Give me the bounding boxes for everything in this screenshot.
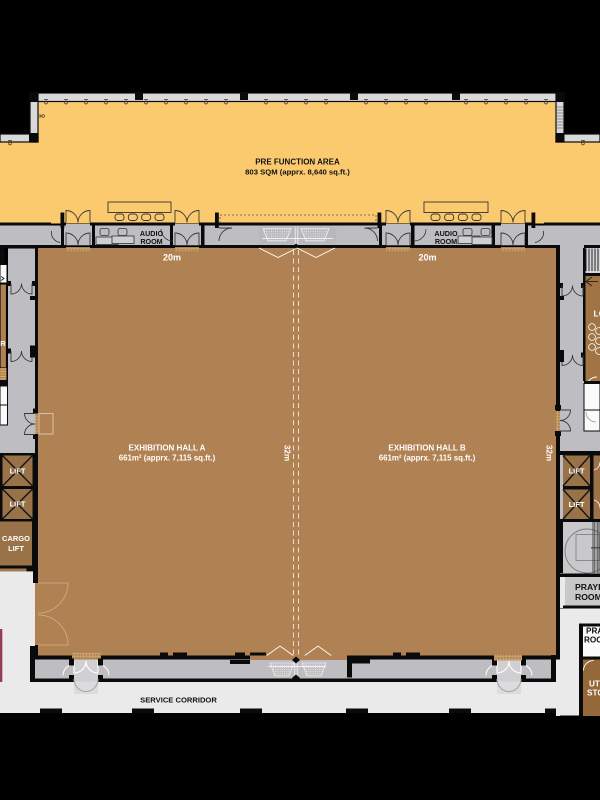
svg-text:R: R: [0, 339, 6, 348]
svg-text:LIFT: LIFT: [569, 466, 585, 475]
svg-text:EXHIBITION HALL A: EXHIBITION HALL A: [129, 444, 206, 453]
svg-text:32m: 32m: [283, 445, 292, 461]
svg-text:LIFT: LIFT: [10, 466, 26, 475]
svg-text:PRAYER: PRAYER: [575, 582, 600, 592]
svg-text:ROOM: ROOM: [140, 237, 162, 246]
svg-text:661m² (apprx. 7,115 sq.ft.): 661m² (apprx. 7,115 sq.ft.): [379, 454, 476, 463]
svg-text:ROOM (: ROOM (: [584, 636, 600, 645]
svg-text:LOUNGE: LOUNGE: [594, 309, 600, 319]
svg-text:PRE FUNCTION AREA: PRE FUNCTION AREA: [255, 158, 340, 167]
svg-text:32m: 32m: [545, 445, 554, 461]
svg-text:CARGO: CARGO: [2, 534, 30, 543]
svg-text:ROOM: ROOM: [435, 237, 457, 246]
svg-text:20m: 20m: [418, 253, 436, 263]
svg-text:LIFT: LIFT: [8, 544, 24, 553]
svg-text:661m² (apprx. 7,115 sq.ft.): 661m² (apprx. 7,115 sq.ft.): [119, 454, 216, 463]
svg-text:LIFT: LIFT: [10, 500, 26, 509]
svg-text:ROOM (: ROOM (: [575, 592, 600, 602]
svg-text:LIFT: LIFT: [569, 500, 585, 509]
svg-text:20m: 20m: [163, 253, 181, 263]
svg-text:EXHIBITION HALL B: EXHIBITION HALL B: [388, 444, 465, 453]
svg-text:UTILITY: UTILITY: [589, 680, 600, 689]
svg-text:PRAYER: PRAYER: [586, 627, 600, 636]
svg-text:803 SQM (apprx. 8,640 sq.ft.): 803 SQM (apprx. 8,640 sq.ft.): [245, 168, 350, 177]
svg-text:STORE: STORE: [587, 689, 600, 698]
svg-text:SERVICE CORRIDOR: SERVICE CORRIDOR: [140, 696, 217, 705]
